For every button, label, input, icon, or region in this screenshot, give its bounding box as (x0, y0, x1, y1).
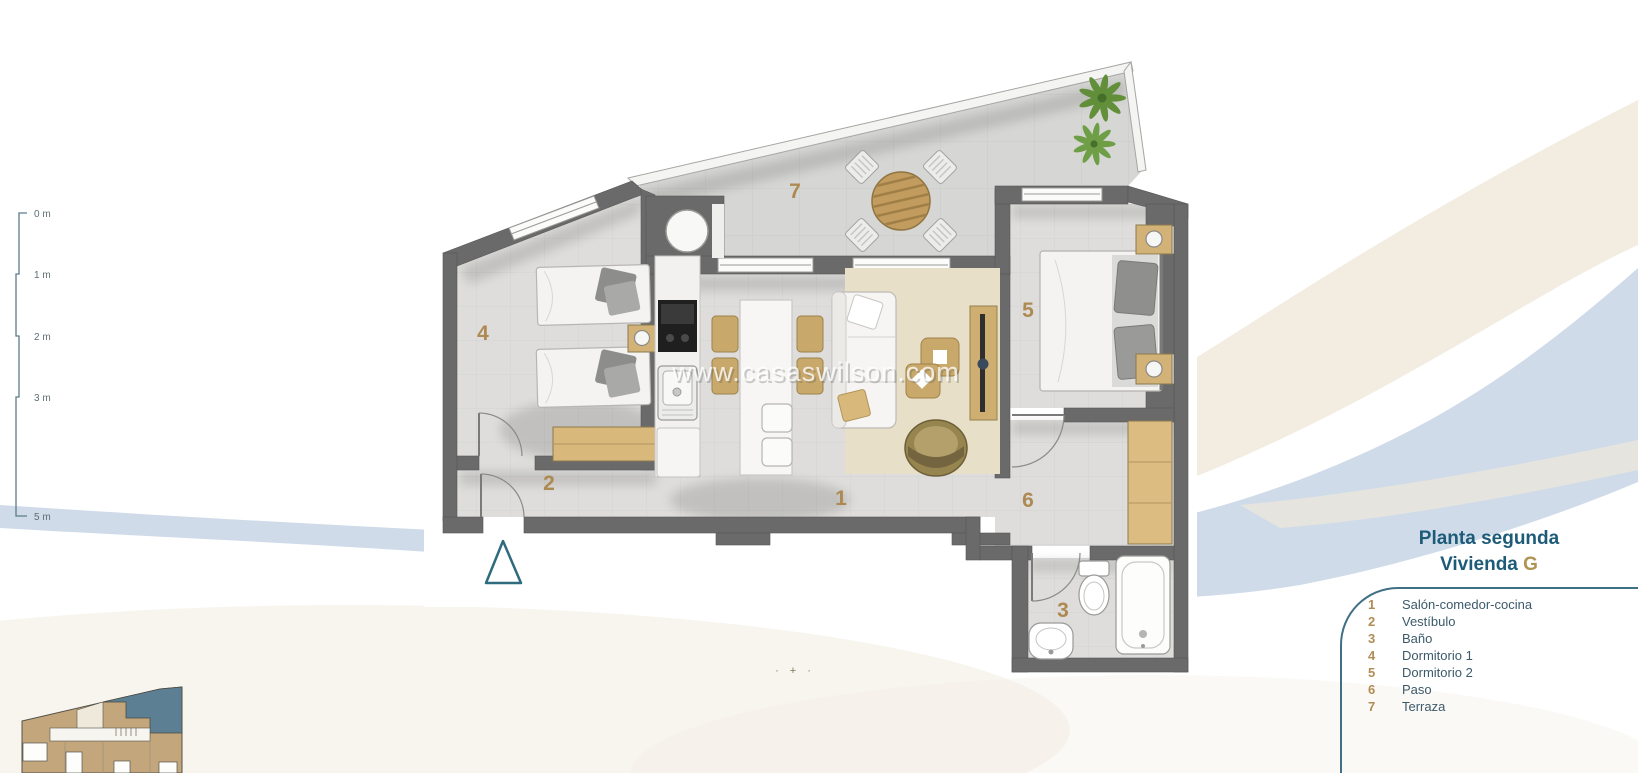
wall-right (1174, 204, 1188, 672)
wall-bath-bottom (1012, 658, 1188, 672)
wall-bottom-main (524, 517, 980, 533)
cooktop (658, 300, 697, 352)
entrance-marker (486, 541, 521, 583)
legend-item: 3 Baño (1340, 630, 1638, 647)
wall-bed5-paso (1064, 408, 1174, 422)
room-label-2: 2 (543, 472, 555, 495)
watermark: www.casaswilson.com www.casaswilson.com (671, 357, 962, 389)
nightstand-dorm2 (1136, 354, 1172, 384)
bathtub (1116, 556, 1170, 654)
nightstand-dorm2 (1136, 225, 1172, 254)
unit-label: Vivienda (1440, 554, 1518, 575)
scale-tick-0: 0 m (34, 209, 51, 220)
wardrobe-dorm1 (553, 427, 655, 461)
legend-item: 6 Paso (1340, 681, 1638, 698)
legend-item: 7 Terraza (1340, 698, 1638, 715)
plan-title: Planta segunda (1340, 526, 1638, 552)
wall-bottom-left (443, 517, 483, 533)
stool (762, 404, 792, 432)
room-label-1: 1 (835, 487, 847, 510)
key-plan (22, 687, 182, 773)
legend-item: 4 Dormitorio 1 (1340, 647, 1638, 664)
armchair (905, 420, 967, 476)
decorative-divider: · + · (755, 665, 835, 677)
single-bed-1 (536, 265, 650, 326)
window-living-1 (718, 258, 813, 272)
room-label-6: 6 (1022, 489, 1034, 512)
scale-tick-3: 3 m (34, 393, 51, 404)
room-label-5: 5 (1022, 299, 1034, 322)
keyplan-corridor (50, 728, 150, 741)
svg-text:www.casaswilson.com: www.casaswilson.com (671, 357, 960, 387)
toilet (1079, 561, 1109, 615)
unit-letter: G (1523, 554, 1538, 575)
window-dormitorio2 (1022, 188, 1102, 201)
scale-tick-4: 5 m (34, 512, 51, 523)
wardrobe-paso (1128, 421, 1172, 544)
keyplan-cream-wedge (77, 702, 103, 730)
plan-unit: Vivienda G (1340, 552, 1638, 578)
chair (712, 316, 738, 352)
stool (762, 438, 792, 466)
boiler (666, 210, 708, 252)
washbasin (1029, 623, 1073, 659)
single-bed-2 (536, 347, 650, 408)
room-label-4: 4 (477, 322, 489, 345)
room-label-3: 3 (1057, 599, 1069, 622)
scale-bar: 0 m 1 m 2 m 3 m 5 m (16, 209, 51, 523)
wall-left (443, 253, 457, 521)
kitchen-cabinet (657, 428, 700, 477)
wall-bath-left (1012, 546, 1028, 672)
legend-item: 5 Dormitorio 2 (1340, 664, 1638, 681)
room-dormitorio-1 (536, 265, 657, 461)
scale-tick-2: 2 m (34, 332, 51, 343)
room-label-7: 7 (789, 180, 801, 203)
tv-console (970, 306, 997, 420)
nightstand-dorm1 (628, 325, 657, 352)
legend-list: 1 Salón-comedor-cocina 2 Vestíbulo 3 Bañ… (1340, 596, 1638, 715)
scale-tick-1: 1 m (34, 270, 51, 281)
terrace-doorway (712, 204, 724, 258)
wall-room4-divider-a (457, 456, 479, 470)
plan-title-block: Planta segunda Vivienda G (1340, 526, 1638, 578)
floorplan-page: 1 2 3 4 5 6 7 www.casaswilson.com www.ca… (0, 0, 1638, 773)
legend-item: 2 Vestíbulo (1340, 613, 1638, 630)
chair (797, 316, 823, 352)
legend-item: 1 Salón-comedor-cocina (1340, 596, 1638, 613)
